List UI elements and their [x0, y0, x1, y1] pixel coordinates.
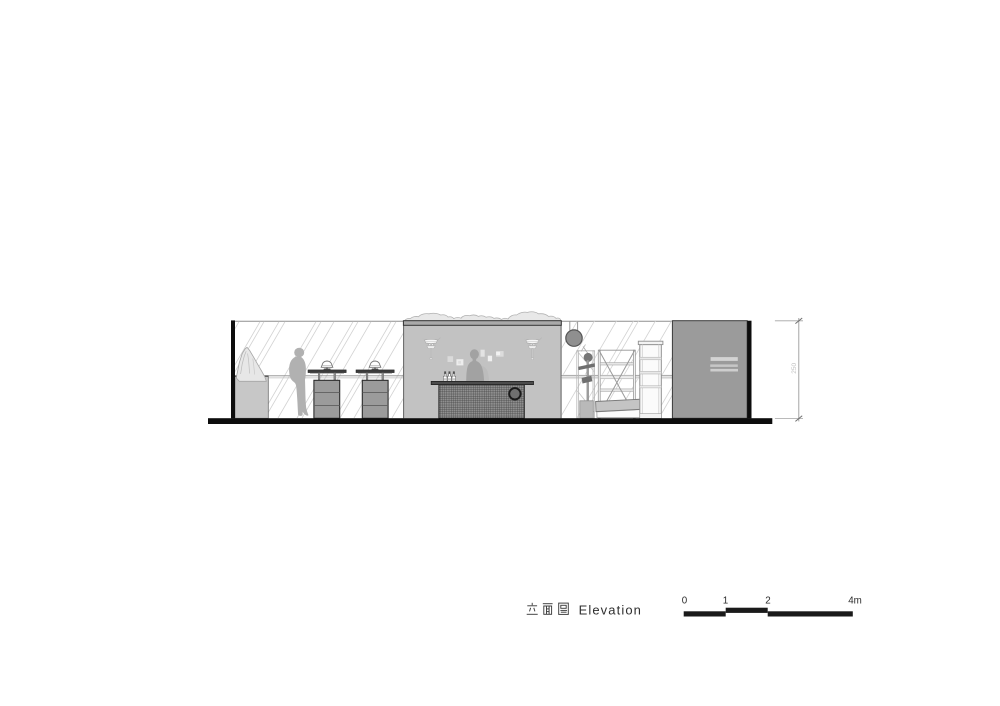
svg-text:4m: 4m	[848, 596, 862, 607]
svg-text:250: 250	[791, 362, 798, 373]
svg-text:2: 2	[765, 596, 770, 607]
svg-text:Elevation: Elevation	[579, 603, 642, 618]
svg-text:0: 0	[682, 596, 688, 607]
svg-text:1: 1	[723, 596, 728, 607]
